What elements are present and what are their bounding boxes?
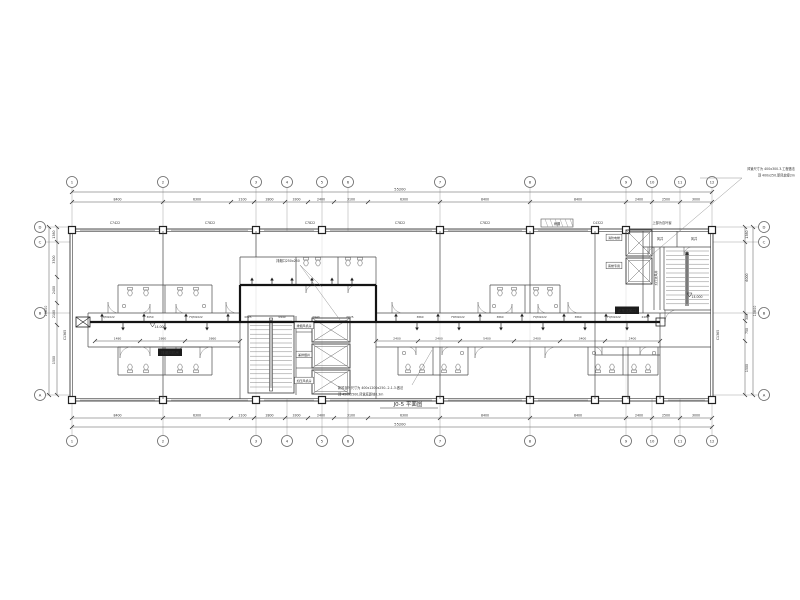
basin-fixture (122, 304, 126, 308)
annotation-top-right: 顶 400x250.新风软接2m (758, 173, 795, 178)
wc-fixture (194, 364, 198, 370)
corridor-code: 3860 (416, 315, 423, 319)
dim-left-value: 2100 (52, 310, 56, 318)
dim-right-value: 300 (745, 314, 749, 320)
diffuser-arrow (436, 314, 440, 317)
wc-tank (178, 370, 183, 373)
corridor-code: FQM1022 (189, 315, 203, 319)
room-label: 上部为百叶窗 (652, 220, 671, 225)
window-code: C7822 (205, 221, 215, 225)
column-pier (253, 397, 260, 404)
supply-duct-run (76, 278, 665, 331)
wc-fixture (406, 364, 410, 370)
grid-bubble-label: 12 (710, 179, 715, 184)
diffuser-arrow (350, 278, 354, 281)
door-swing (176, 304, 185, 313)
dim-right-value: 1500 (745, 364, 749, 372)
wc-tank (498, 287, 503, 290)
corridor-code: FQM1022 (607, 315, 621, 319)
overall-right-value: 10800 (753, 306, 757, 317)
grid-bubble-label: C (39, 239, 42, 244)
wc-fixture (178, 364, 182, 370)
dim-bottom-value: 8400 (113, 414, 121, 418)
dim-top-value: 2100 (238, 198, 246, 202)
canopy-hatch (570, 219, 573, 227)
wc-fixture (316, 260, 320, 266)
door-swing (538, 304, 547, 313)
dim-top-value: 2400 (317, 198, 325, 202)
dim-right-value: 6000 (745, 273, 749, 281)
canopy-hatch (545, 219, 548, 227)
grid-bubble-label: D (39, 224, 42, 229)
wc-tank (128, 370, 133, 373)
dim-bottom-value: 8400 (574, 414, 582, 418)
window-code: C7822 (395, 221, 405, 225)
dim-top-value: 3000 (692, 198, 700, 202)
wc-tank (144, 287, 149, 290)
boxed-label: 加压风机房 (296, 378, 311, 383)
corridor-code: 0940 (312, 315, 319, 319)
column-pier (319, 227, 326, 234)
dim-bottom-value: 3000 (692, 414, 700, 418)
stairs-and-elevators (248, 230, 709, 395)
wc-fixture (128, 290, 132, 296)
door-swing (475, 347, 486, 358)
wc-fixture (144, 364, 148, 370)
door-swing (226, 302, 237, 313)
room-label: 风井 (691, 236, 697, 241)
corridor-code: FDM1022 (451, 315, 465, 319)
boxed-label: 客梯专用 (608, 263, 620, 268)
dim-top-value: 3300 (292, 198, 300, 202)
basin-fixture (492, 304, 496, 308)
diffuser-arrow (330, 278, 334, 281)
corridor-dim: 3400 (579, 337, 587, 341)
diffuser-arrow (394, 314, 398, 317)
door-swing (442, 347, 450, 355)
wc-fixture (194, 290, 198, 296)
canopy-hatch (565, 219, 568, 227)
dim-bottom-value: 2100 (238, 414, 246, 418)
annotation-bottom-center: 新风百叶尺寸为 400x1200x250.-2-1.3.做法 (338, 385, 403, 390)
dim-top-value: 8400 (113, 198, 121, 202)
diffuser-arrow (562, 314, 566, 317)
wc-fixture (512, 290, 516, 296)
room-label: 风井 (657, 236, 663, 241)
grid-bubble-label: A (39, 392, 42, 397)
corridor-dim: 3860 (209, 337, 217, 341)
door-swing (568, 302, 579, 313)
corridor-dim: 2400 (393, 337, 401, 341)
dim-top-value: 8400 (481, 198, 489, 202)
basin-fixture (652, 351, 656, 355)
annotation-top-right: 风管尺寸为 400x300.3.工程做法 (747, 166, 795, 171)
wc-fixture (128, 364, 132, 370)
window-code: C1365 (63, 330, 67, 340)
door-swing (200, 347, 211, 358)
diffuser-arrow (121, 328, 125, 331)
grid-bubble-label: 10 (650, 438, 655, 443)
column-pier (709, 397, 716, 404)
wc-fixture (456, 364, 460, 370)
room-label: 雨棚 (554, 221, 560, 226)
dark-label: 排烟风机房 (161, 350, 179, 355)
door-swing (503, 304, 512, 313)
dim-bottom-value: 8400 (481, 414, 489, 418)
corridor-dim: 2860 (159, 337, 167, 341)
dim-bottom-value: 2400 (635, 414, 643, 418)
wc-tank (194, 370, 199, 373)
wc-tank (346, 257, 351, 260)
diffuser-arrow (457, 328, 461, 331)
canopy-hatch (550, 219, 553, 227)
dim-bottom-value: 2800 (265, 414, 273, 418)
wc-tank (442, 370, 447, 373)
dim-top-value: 2800 (265, 198, 273, 202)
diffuser-arrow (415, 328, 419, 331)
corridor-code: 0940 (278, 315, 285, 319)
grid-bubble-label: 12 (710, 438, 715, 443)
boxed-label: 排烟风机房 (296, 323, 311, 328)
wc-fixture (646, 364, 650, 370)
dim-top-value: 8400 (574, 198, 582, 202)
wc-fixture (610, 364, 614, 370)
diffuser-arrow (520, 314, 524, 317)
dim-left-value: 2400 (52, 286, 56, 294)
drawing-sheet: 123456789101112123456789101112DCBADCBA 8… (0, 0, 800, 600)
corridor-code: 0625 (346, 315, 353, 319)
corridor-code: 3860 (496, 315, 503, 319)
overall-bottom-value: 55200 (394, 423, 406, 427)
dim-bottom-value: 3300 (292, 414, 300, 418)
door-swing (348, 285, 356, 293)
diffuser-arrow (250, 278, 254, 281)
door-swing (545, 347, 556, 358)
dim-left-value: 3300 (52, 255, 56, 263)
door-swing (108, 302, 119, 313)
diffuser-arrow (142, 314, 146, 317)
sheet-title: J0-5 平面图 (393, 400, 423, 408)
grid-bubble-label: 10 (650, 179, 655, 184)
wc-fixture (178, 290, 182, 296)
wc-tank (358, 257, 363, 260)
wc-tank (596, 370, 601, 373)
window-code: C7822 (480, 221, 490, 225)
annotation-leader (412, 350, 432, 385)
diffuser-arrow (270, 278, 274, 281)
column-pier (69, 397, 76, 404)
corridor-dim: 1480 (114, 337, 122, 341)
dim-bottom-value: 2500 (662, 414, 670, 418)
grid-bubble-label: C (763, 239, 766, 244)
wc-tank (194, 287, 199, 290)
wc-tank (456, 370, 461, 373)
wc-fixture (548, 290, 552, 296)
column-pier (623, 397, 630, 404)
wc-tank (610, 370, 615, 373)
diffuser-arrow (583, 328, 587, 331)
corridor-dim: 2400 (435, 337, 443, 341)
diffuser-arrow (478, 314, 482, 317)
wc-fixture (144, 290, 148, 296)
dim-left-value: 1380 (52, 230, 56, 238)
corridor-code: 2400 (641, 315, 648, 319)
wc-fixture (632, 364, 636, 370)
corridor-dim: 5400 (483, 337, 491, 341)
door-swing (665, 310, 677, 322)
dim-top-value: 6300 (193, 198, 201, 202)
overall-top-value: 55200 (394, 188, 406, 192)
basin-fixture (460, 351, 464, 355)
annotation-leader (648, 178, 742, 258)
dim-left-value: 1500 (52, 356, 56, 364)
corridor-dim: 2400 (629, 337, 637, 341)
window-code: C1365 (716, 330, 720, 340)
column-pier (709, 227, 716, 234)
dim-bottom-value: 6300 (193, 414, 201, 418)
basin-fixture (554, 304, 558, 308)
dark-label: 正压送风口 (618, 308, 636, 313)
wc-tank (144, 370, 149, 373)
diffuser-arrow (541, 328, 545, 331)
annotation-leader (300, 265, 322, 287)
room-label: 排烟口250x250 (276, 258, 300, 263)
boxed-label: 消防电梯 (608, 235, 620, 240)
wc-tank (512, 287, 517, 290)
corridor-code: 0625 (244, 315, 251, 319)
room-label: 14.000 (154, 325, 165, 329)
door-swing (120, 347, 131, 358)
annotation-bottom-center: 顶 450x2500.风管底距地0.3m (338, 392, 383, 397)
door-swing (306, 285, 314, 293)
boxed-label: 兼排烟井 (298, 352, 310, 357)
overall-left-value: 10800 (44, 306, 48, 317)
corridor-code: FQM1022 (533, 315, 547, 319)
wc-fixture (596, 364, 600, 370)
dim-bottom-value: 6300 (400, 414, 408, 418)
wc-tank (128, 287, 133, 290)
wc-tank (646, 370, 651, 373)
wc-fixture (534, 290, 538, 296)
dim-bottom-value: 2400 (317, 414, 325, 418)
dim-top-value: 6300 (400, 198, 408, 202)
basin-fixture (402, 351, 406, 355)
corridor-code: 3860 (574, 315, 581, 319)
dim-top-value: 2400 (635, 198, 643, 202)
wc-tank (316, 257, 321, 260)
wc-fixture (358, 260, 362, 266)
wc-tank (632, 370, 637, 373)
column-pier (319, 397, 326, 404)
door-swing (640, 347, 648, 355)
diffuser-arrow (205, 328, 209, 331)
wc-fixture (346, 260, 350, 266)
wc-tank (304, 257, 309, 260)
door-swing (408, 347, 416, 355)
corridor-code: 3050 (146, 315, 153, 319)
wc-tank (406, 370, 411, 373)
canopy-hatch (560, 219, 563, 227)
wc-tank (534, 287, 539, 290)
grid-bubble-label: 11 (678, 438, 683, 443)
diffuser-arrow (499, 328, 503, 331)
diffuser-arrow (226, 314, 230, 317)
grid-bubble-label: B (39, 310, 42, 315)
grid-bubble-label: A (763, 392, 766, 397)
grid-bubble-label: 11 (678, 179, 683, 184)
window-code: C7422 (110, 221, 120, 225)
window-code: C4322 (593, 221, 603, 225)
door-swing (141, 304, 150, 313)
vertical-label: 加压送风井 (653, 270, 658, 285)
diffuser-arrow (184, 314, 188, 317)
dim-bottom-value: 3100 (347, 414, 355, 418)
diffuser-arrow (625, 328, 629, 331)
corridor-code: FQM1022 (101, 315, 115, 319)
room-label: 14.000 (691, 295, 702, 299)
window-code: C7822 (305, 221, 315, 225)
dim-top-value: 2500 (662, 198, 670, 202)
wc-fixture (442, 364, 446, 370)
grid-bubble-label: D (763, 224, 766, 229)
column-pier (69, 227, 76, 234)
diffuser-arrow (290, 278, 294, 281)
door-swing (392, 302, 403, 313)
floor-plan-canvas: 123456789101112123456789101112DCBADCBA 8… (0, 0, 800, 600)
wc-tank (178, 287, 183, 290)
axis-centerlines (163, 231, 626, 399)
grid-bubble-label: B (763, 310, 766, 315)
basin-fixture (202, 304, 206, 308)
corridor-dim: 2400 (533, 337, 541, 341)
door-swing (478, 302, 489, 313)
wc-fixture (304, 260, 308, 266)
dim-right-value: 750 (745, 328, 749, 334)
wc-fixture (498, 290, 502, 296)
dim-right-value: 1380 (745, 230, 749, 238)
dim-top-value: 3100 (347, 198, 355, 202)
door-swing (141, 347, 150, 356)
wc-tank (548, 287, 553, 290)
